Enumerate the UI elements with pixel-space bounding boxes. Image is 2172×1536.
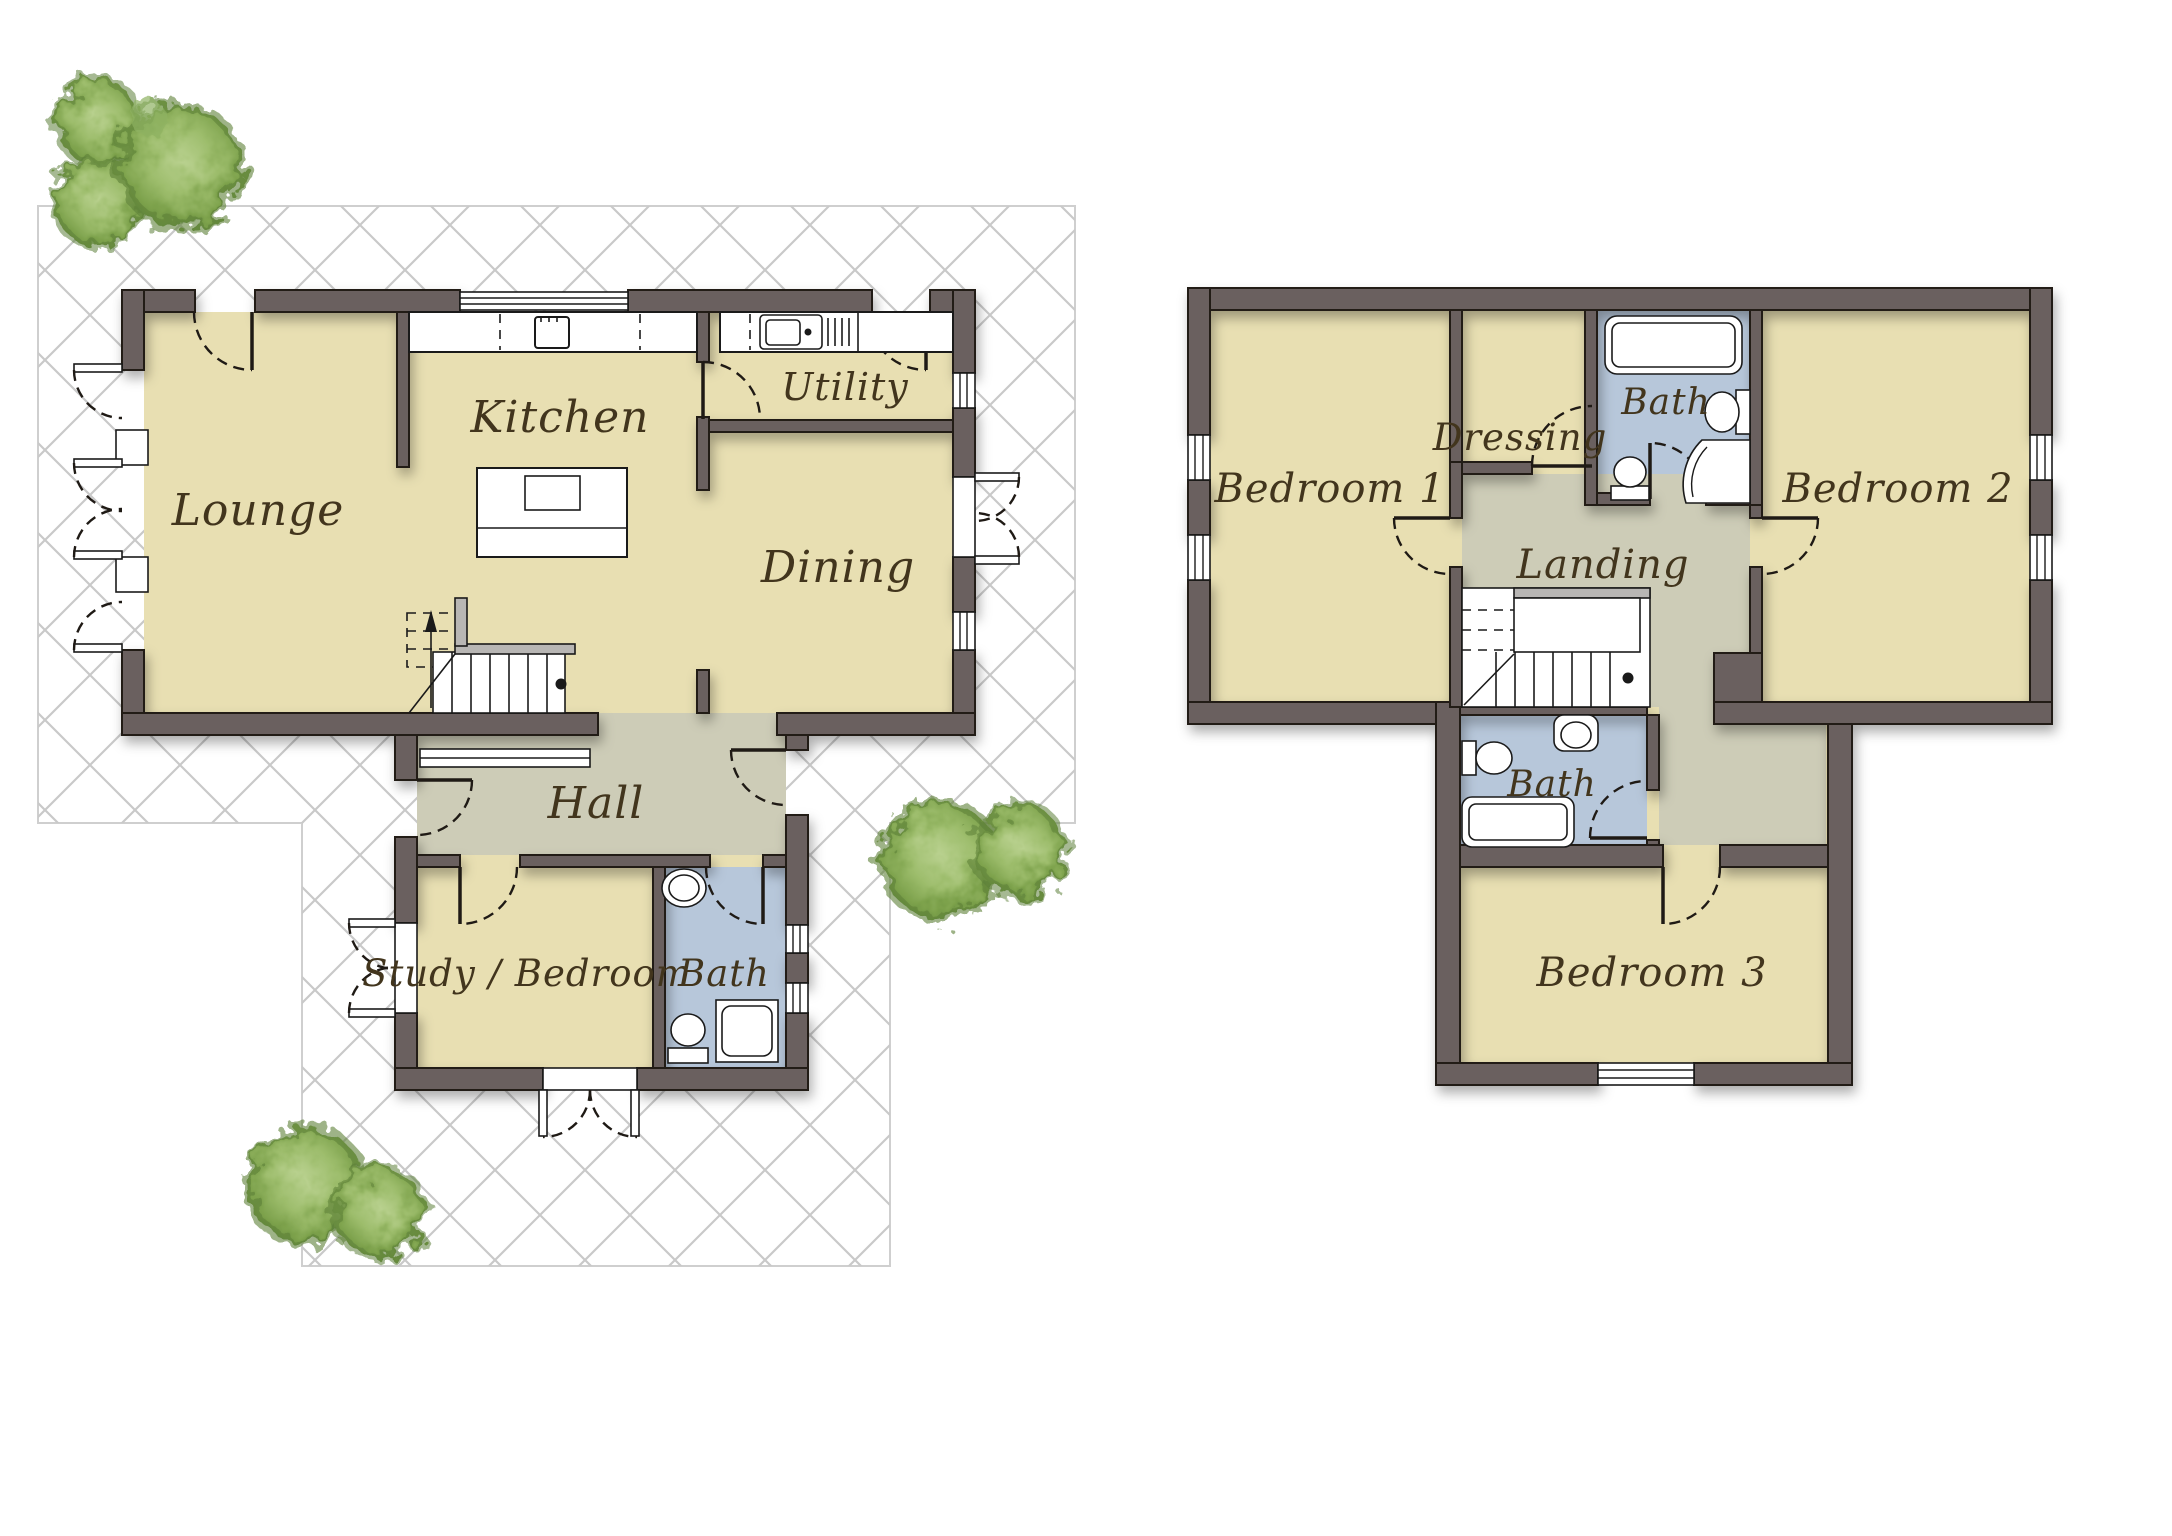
utility-counter [720,312,953,352]
room-label-bedroom-2: Bedroom 2 [1781,466,2013,512]
bay-mullion [116,557,148,592]
room-label-kitchen: Kitchen [470,392,650,443]
window-icon [786,925,808,953]
window-icon [1598,1063,1694,1085]
window-icon [2030,435,2052,480]
room-label-bedroom-1: Bedroom 1 [1213,466,1445,512]
first-floor-plan: Bedroom 1 Dressing Bath Bedroom 2 Landin… [1188,288,2052,1085]
window-icon [1188,435,1210,480]
floor-plan-canvas: Lounge Kitchen Utility Dining Hall Study… [0,0,2172,1536]
tree-cluster-top-left [54,80,241,246]
room-label-landing: Landing [1516,542,1690,588]
ensuite-toilet-icon [1611,457,1649,500]
room-label-hall: Hall [547,778,645,829]
room-label-bath: Bath [677,952,770,995]
window-icon [2030,535,2052,580]
ensuite-basin-icon [1705,390,1750,434]
stairs-icon [1462,588,1650,707]
room-label-lounge: Lounge [171,485,345,536]
room-label-dressing: Dressing [1432,416,1608,459]
hob-icon [535,317,569,348]
floor-plan-page: Lounge Kitchen Utility Dining Hall Study… [0,0,2172,1536]
utility-sink-icon [760,315,849,349]
window-icon [1188,535,1210,580]
room-label-bath-ensuite: Bath [1620,382,1711,423]
quadrant-shower-icon [1683,440,1750,503]
family-toilet-icon [1462,741,1512,775]
room-label-bedroom-3: Bedroom 3 [1535,950,1767,996]
shower-icon [716,1000,778,1062]
window-icon [953,373,975,408]
ensuite-bathtub-icon [1605,316,1742,374]
window-icon [786,983,808,1013]
room-label-dining: Dining [760,542,915,593]
room-label-bath-family: Bath [1506,764,1597,805]
kitchen-counter [409,312,697,352]
window-icon [460,292,628,310]
basin-icon [662,869,706,907]
room-label-study-bedroom: Study / Bedroom [362,952,692,995]
toilet-icon [668,1014,708,1063]
tree-cluster-middle-right [882,802,1065,918]
kitchen-island [477,468,627,557]
window-icon [953,612,975,650]
room-label-utility: Utility [781,365,909,409]
family-basin-icon [1554,715,1598,751]
